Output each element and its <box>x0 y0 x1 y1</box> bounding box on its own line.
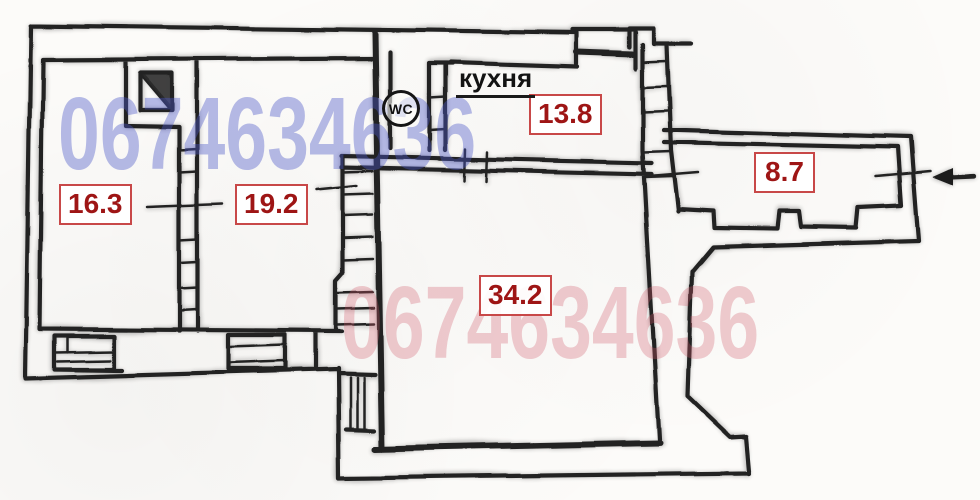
wc-label: WC <box>389 101 413 117</box>
area-label-room-16-3: 16.3 <box>59 184 132 225</box>
area-label-kitchen-13-8: 13.8 <box>529 94 602 135</box>
kitchen-room-title: кухня <box>456 64 535 98</box>
vent-shaft-icon <box>142 75 170 108</box>
area-label-hallway-8-7: 8.7 <box>754 152 815 193</box>
scanned-floor-plan-page: 0674634636 0674634636 16.3 19.2 34.2 13.… <box>0 0 980 500</box>
area-label-room-34-2: 34.2 <box>479 275 552 316</box>
area-label-room-19-2: 19.2 <box>235 184 308 225</box>
entrance-arrow-icon <box>933 168 953 185</box>
wc-badge: WC <box>382 90 420 127</box>
